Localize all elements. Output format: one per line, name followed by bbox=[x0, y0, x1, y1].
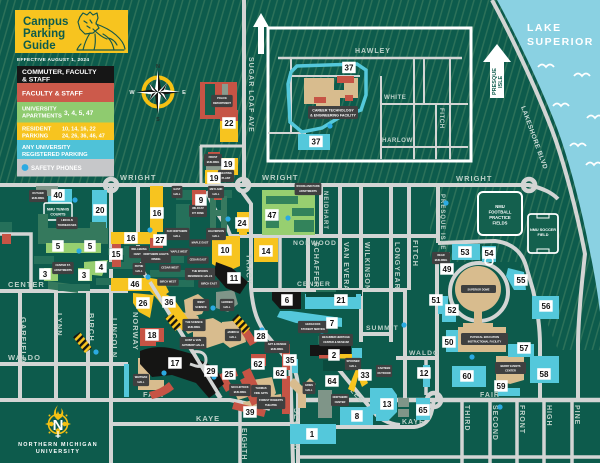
svg-text:WHITE: WHITE bbox=[384, 94, 406, 101]
svg-text:CENTER & MUSEUM: CENTER & MUSEUM bbox=[323, 340, 349, 344]
svg-text:51: 51 bbox=[432, 296, 441, 305]
svg-text:7: 7 bbox=[330, 319, 335, 328]
svg-text:REAR: REAR bbox=[437, 253, 444, 257]
svg-text:SCIENCE: SCIENCE bbox=[195, 305, 207, 309]
svg-text:3: 3 bbox=[43, 270, 48, 279]
svg-text:S: S bbox=[156, 117, 160, 123]
svg-text:22: 22 bbox=[225, 119, 234, 128]
svg-text:LAKE: LAKE bbox=[527, 22, 562, 34]
svg-text:HARDEN: HARDEN bbox=[221, 300, 232, 304]
svg-text:EAST: EAST bbox=[174, 187, 181, 191]
svg-text:W: W bbox=[129, 90, 135, 96]
svg-text:56: 56 bbox=[542, 302, 551, 311]
svg-text:19: 19 bbox=[210, 174, 219, 183]
svg-text:36: 36 bbox=[165, 298, 174, 307]
svg-text:NMU: NMU bbox=[495, 204, 505, 209]
svg-text:WILKINSON: WILKINSON bbox=[363, 242, 370, 291]
svg-text:6: 6 bbox=[285, 296, 290, 305]
svg-text:ANTWERP HALLS: ANTWERP HALLS bbox=[182, 343, 205, 347]
svg-text:LINCOLN: LINCOLN bbox=[61, 218, 73, 222]
svg-text:FIELDS: FIELDS bbox=[493, 221, 508, 226]
svg-text:CEDAR WEST: CEDAR WEST bbox=[161, 266, 179, 270]
svg-text:INSTRUCTIONAL FACILITY: INSTRUCTIONAL FACILITY bbox=[468, 340, 502, 344]
svg-text:FAR NORTHERN: FAR NORTHERN bbox=[167, 229, 188, 233]
svg-text:DINING: DINING bbox=[151, 257, 160, 261]
svg-text:62: 62 bbox=[276, 369, 285, 378]
svg-text:12: 12 bbox=[420, 369, 429, 378]
svg-text:HAWLEY: HAWLEY bbox=[355, 48, 391, 55]
svg-text:37: 37 bbox=[345, 63, 354, 72]
svg-text:FOREST ROBERTS: FOREST ROBERTS bbox=[259, 398, 283, 402]
svg-text:LYNN: LYNN bbox=[55, 313, 64, 337]
svg-text:NEIDHART: NEIDHART bbox=[322, 191, 328, 230]
svg-text:Parking: Parking bbox=[23, 28, 65, 40]
svg-text:GRIES: GRIES bbox=[305, 383, 313, 387]
svg-text:3, 4, 5, 47: 3, 4, 5, 47 bbox=[64, 110, 94, 117]
svg-text:HEDGCOCK: HEDGCOCK bbox=[305, 322, 320, 326]
svg-text:SUPERIOR: SUPERIOR bbox=[527, 36, 594, 48]
svg-text:10, 14, 16, 22: 10, 14, 16, 22 bbox=[62, 127, 96, 133]
svg-text:N: N bbox=[156, 64, 160, 70]
svg-text:STUDENT SERVICE: STUDENT SERVICE bbox=[301, 327, 326, 331]
svg-text:40: 40 bbox=[54, 191, 63, 200]
svg-text:FIT ZONE: FIT ZONE bbox=[192, 211, 204, 215]
svg-text:28: 28 bbox=[257, 332, 266, 341]
svg-text:SCHAFFER: SCHAFFER bbox=[312, 242, 319, 288]
svg-text:NORTHERN LIGHTS: NORTHERN LIGHTS bbox=[144, 252, 169, 256]
svg-text:APARTMENTS: APARTMENTS bbox=[22, 114, 62, 120]
svg-text:& ENGINEERING FACILITY: & ENGINEERING FACILITY bbox=[310, 114, 356, 118]
svg-text:FITCH: FITCH bbox=[438, 108, 445, 129]
svg-text:MAPLE WEST: MAPLE WEST bbox=[170, 250, 188, 254]
svg-text:MEYLAND: MEYLAND bbox=[210, 187, 223, 191]
svg-text:3: 3 bbox=[82, 271, 87, 280]
svg-text:PRACTICE: PRACTICE bbox=[489, 215, 511, 220]
svg-text:BUILDING: BUILDING bbox=[32, 196, 45, 200]
svg-text:1: 1 bbox=[310, 430, 315, 439]
svg-text:ANY UNIVERSITY: ANY UNIVERSITY bbox=[22, 145, 71, 151]
svg-text:THE SCIENCE: THE SCIENCE bbox=[185, 320, 203, 324]
svg-text:PINE: PINE bbox=[573, 405, 580, 425]
svg-text:EFFECTIVE AUGUST 1, 2024: EFFECTIVE AUGUST 1, 2024 bbox=[17, 57, 89, 63]
svg-text:HALL: HALL bbox=[224, 305, 231, 309]
svg-text:PLANT: PLANT bbox=[222, 176, 231, 180]
svg-text:WELLBEING: WELLBEING bbox=[131, 247, 147, 251]
svg-text:29: 29 bbox=[207, 367, 216, 376]
svg-text:FINE ARTS: FINE ARTS bbox=[254, 391, 268, 395]
svg-text:ART & DESIGN: ART & DESIGN bbox=[268, 342, 287, 346]
svg-text:14: 14 bbox=[262, 247, 271, 256]
svg-text:59: 59 bbox=[497, 382, 506, 391]
svg-text:KAYE: KAYE bbox=[402, 419, 425, 426]
svg-text:WRIGHT: WRIGHT bbox=[120, 173, 156, 182]
svg-text:HALL: HALL bbox=[174, 192, 181, 196]
svg-text:HEATING: HEATING bbox=[220, 171, 231, 175]
svg-text:DEPARTMENT: DEPARTMENT bbox=[213, 101, 231, 105]
svg-text:THE WOODS: THE WOODS bbox=[192, 269, 208, 273]
svg-text:REGISTERED PARKING: REGISTERED PARKING bbox=[22, 152, 88, 158]
svg-text:FOOTBALL: FOOTBALL bbox=[489, 210, 512, 215]
svg-text:GARFIELD: GARFIELD bbox=[19, 317, 28, 363]
svg-text:24, 26, 36, 46, 47: 24, 26, 36, 46, 47 bbox=[62, 134, 105, 140]
svg-text:25: 25 bbox=[225, 370, 234, 379]
svg-text:BUILDING: BUILDING bbox=[271, 347, 284, 351]
svg-text:APARTMENTS: APARTMENTS bbox=[299, 189, 317, 193]
svg-text:WRIGHT: WRIGHT bbox=[456, 174, 492, 183]
svg-text:4: 4 bbox=[99, 263, 104, 272]
svg-text:53: 53 bbox=[461, 248, 470, 257]
svg-text:HALL: HALL bbox=[174, 234, 181, 238]
svg-text:13: 13 bbox=[383, 400, 392, 409]
svg-text:BUILDING: BUILDING bbox=[435, 258, 448, 262]
svg-text:24: 24 bbox=[238, 219, 247, 228]
svg-text:BEAUMIER HERITAGE: BEAUMIER HERITAGE bbox=[322, 335, 350, 339]
svg-text:CENTER: CENTER bbox=[505, 369, 516, 373]
svg-text:50: 50 bbox=[445, 338, 454, 347]
svg-text:27: 27 bbox=[156, 236, 165, 245]
svg-text:HALL: HALL bbox=[213, 192, 220, 196]
svg-text:MCCLINTOCK: MCCLINTOCK bbox=[231, 385, 249, 389]
svg-text:FACULTY & STAFF: FACULTY & STAFF bbox=[22, 91, 83, 98]
svg-text:BUILDING: BUILDING bbox=[207, 160, 220, 164]
svg-text:THIRD: THIRD bbox=[463, 405, 470, 431]
svg-text:PARKING: PARKING bbox=[22, 134, 49, 140]
svg-text:64: 64 bbox=[328, 377, 337, 386]
svg-text:FITCH: FITCH bbox=[411, 240, 420, 267]
svg-text:FRONT: FRONT bbox=[518, 405, 525, 434]
svg-text:WOODLAND PARK: WOODLAND PARK bbox=[296, 184, 320, 188]
svg-text:COURTS: COURTS bbox=[50, 213, 66, 217]
svg-text:& STAFF: & STAFF bbox=[22, 77, 50, 84]
svg-text:Guide: Guide bbox=[23, 40, 56, 52]
svg-text:5: 5 bbox=[56, 242, 61, 251]
svg-text:HALL: HALL bbox=[350, 364, 357, 368]
svg-text:CENTER: CENTER bbox=[8, 280, 45, 289]
svg-text:WILDCAT: WILDCAT bbox=[192, 206, 204, 210]
svg-text:HIGH: HIGH bbox=[545, 405, 552, 427]
svg-text:52: 52 bbox=[448, 306, 457, 315]
svg-text:CEDAR EAST: CEDAR EAST bbox=[190, 258, 207, 262]
svg-text:54: 54 bbox=[485, 249, 494, 258]
svg-text:HALVERSON: HALVERSON bbox=[208, 229, 224, 233]
svg-text:CENTER ST.: CENTER ST. bbox=[55, 263, 70, 267]
svg-text:HARLOW: HARLOW bbox=[382, 137, 413, 144]
svg-text:SUPERIOR DOME: SUPERIOR DOME bbox=[467, 287, 489, 291]
svg-text:SUGAR LOAF AVE: SUGAR LOAF AVE bbox=[247, 57, 254, 133]
svg-text:2: 2 bbox=[332, 351, 337, 360]
svg-text:ISLE: ISLE bbox=[498, 75, 504, 88]
svg-text:POLICE: POLICE bbox=[217, 96, 227, 100]
svg-text:APARTMENTS: APARTMENTS bbox=[54, 268, 72, 272]
svg-text:65: 65 bbox=[419, 406, 428, 415]
svg-text:RESIDENT: RESIDENT bbox=[22, 127, 52, 133]
svg-text:BERRY EVENTS: BERRY EVENTS bbox=[500, 364, 520, 368]
svg-text:37: 37 bbox=[312, 137, 321, 146]
svg-text:62: 62 bbox=[254, 360, 263, 369]
svg-text:NORTHERN MICHIGAN: NORTHERN MICHIGAN bbox=[18, 442, 98, 448]
svg-text:21: 21 bbox=[337, 296, 346, 305]
svg-text:NORTHERN: NORTHERN bbox=[333, 395, 348, 399]
svg-text:HUNT & VAN: HUNT & VAN bbox=[185, 338, 201, 342]
svg-text:CANTEEN: CANTEEN bbox=[378, 366, 391, 370]
svg-text:46: 46 bbox=[131, 280, 140, 289]
svg-text:11: 11 bbox=[230, 274, 239, 283]
svg-text:57: 57 bbox=[520, 344, 529, 353]
svg-text:WHITMAN: WHITMAN bbox=[135, 375, 148, 379]
svg-text:OUTLIER: OUTLIER bbox=[32, 191, 44, 195]
svg-text:16: 16 bbox=[153, 209, 162, 218]
svg-text:THEATRE: THEATRE bbox=[265, 403, 277, 407]
svg-text:VAN EVERA: VAN EVERA bbox=[342, 242, 349, 291]
svg-text:SAFETY PHONES: SAFETY PHONES bbox=[31, 166, 82, 172]
svg-text:WEST: WEST bbox=[197, 300, 205, 304]
svg-text:BUILDING: BUILDING bbox=[234, 390, 247, 394]
svg-text:WRIGHT: WRIGHT bbox=[262, 173, 298, 182]
svg-text:OUTDOOR: OUTDOOR bbox=[377, 371, 390, 375]
svg-text:17: 17 bbox=[171, 359, 180, 368]
svg-text:HALL: HALL bbox=[138, 380, 145, 384]
svg-text:WALDO: WALDO bbox=[409, 350, 439, 357]
svg-text:JAMRICH: JAMRICH bbox=[227, 330, 239, 334]
svg-text:60: 60 bbox=[463, 372, 472, 381]
svg-text:THOMAS: THOMAS bbox=[255, 386, 267, 390]
svg-text:47: 47 bbox=[268, 211, 277, 220]
svg-text:58: 58 bbox=[540, 370, 549, 379]
svg-text:KAYE: KAYE bbox=[196, 414, 220, 423]
svg-text:20: 20 bbox=[96, 206, 105, 215]
svg-text:HALL: HALL bbox=[306, 388, 313, 392]
svg-text:49: 49 bbox=[443, 265, 452, 274]
svg-text:39: 39 bbox=[246, 408, 255, 417]
svg-text:MAPLE EAST: MAPLE EAST bbox=[192, 241, 209, 245]
svg-text:UNIVERSITY: UNIVERSITY bbox=[22, 107, 57, 113]
svg-text:8: 8 bbox=[355, 412, 360, 421]
svg-text:BIRCH: BIRCH bbox=[87, 313, 96, 342]
svg-text:CENTER: CENTER bbox=[335, 400, 346, 404]
svg-text:HALL: HALL bbox=[136, 269, 143, 273]
svg-text:NMU SOCCER: NMU SOCCER bbox=[530, 228, 556, 232]
svg-text:9: 9 bbox=[199, 196, 204, 205]
svg-text:5: 5 bbox=[88, 242, 93, 251]
svg-text:E: E bbox=[182, 90, 186, 96]
svg-text:UNIVERSITY: UNIVERSITY bbox=[36, 449, 80, 455]
svg-text:55: 55 bbox=[517, 276, 526, 285]
svg-text:33: 33 bbox=[361, 371, 370, 380]
svg-text:RESIDENCE HALLS: RESIDENCE HALLS bbox=[188, 274, 213, 278]
svg-text:18: 18 bbox=[148, 331, 157, 340]
svg-text:HALL: HALL bbox=[230, 335, 237, 339]
svg-text:LINCOLN: LINCOLN bbox=[110, 318, 119, 358]
svg-text:26: 26 bbox=[139, 299, 148, 308]
svg-text:FAIR: FAIR bbox=[480, 392, 500, 399]
svg-text:COMMUTER, FACULTY: COMMUTER, FACULTY bbox=[22, 69, 97, 76]
svg-text:TOWNHOUSES: TOWNHOUSES bbox=[58, 223, 77, 227]
svg-text:NORWAY: NORWAY bbox=[131, 312, 140, 351]
svg-text:SPOONER: SPOONER bbox=[347, 359, 360, 363]
svg-text:CAREER TECHNOLOGY: CAREER TECHNOLOGY bbox=[312, 109, 354, 113]
svg-text:Campus: Campus bbox=[23, 16, 68, 28]
svg-text:PAYNE: PAYNE bbox=[135, 264, 144, 268]
svg-text:FIELD: FIELD bbox=[538, 233, 549, 237]
svg-text:BUILDING: BUILDING bbox=[188, 325, 201, 329]
svg-text:HALL: HALL bbox=[213, 234, 220, 238]
svg-text:35: 35 bbox=[286, 356, 295, 365]
svg-text:16: 16 bbox=[127, 234, 136, 243]
svg-text:BIRCH WEST: BIRCH WEST bbox=[160, 280, 177, 284]
svg-text:PHYSICAL EDUCATION: PHYSICAL EDUCATION bbox=[470, 335, 499, 339]
svg-text:SECOND: SECOND bbox=[491, 405, 498, 441]
svg-text:FROST: FROST bbox=[209, 155, 218, 159]
svg-text:LONGYEAR: LONGYEAR bbox=[393, 242, 400, 290]
svg-text:19: 19 bbox=[224, 160, 233, 169]
svg-text:SUMMIT: SUMMIT bbox=[366, 325, 399, 332]
svg-text:10: 10 bbox=[221, 246, 230, 255]
svg-text:BIRCH EAST: BIRCH EAST bbox=[201, 282, 217, 286]
svg-text:EIGHTH: EIGHTH bbox=[240, 428, 247, 460]
svg-text:15: 15 bbox=[112, 250, 121, 259]
svg-text:NMU TENNIS: NMU TENNIS bbox=[47, 208, 70, 212]
